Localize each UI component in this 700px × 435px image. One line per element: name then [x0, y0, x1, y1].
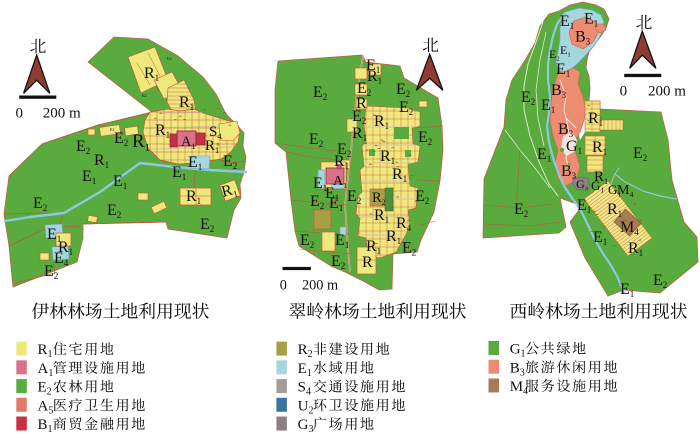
svg-text:200 m: 200 m [302, 278, 338, 294]
svg-text:E2: E2 [167, 56, 171, 61]
svg-text:0: 0 [280, 278, 287, 294]
svg-text:R: R [362, 254, 373, 271]
svg-text:200 m: 200 m [43, 106, 81, 122]
svg-text:0: 0 [16, 106, 24, 122]
svg-text:200 m: 200 m [648, 84, 686, 100]
svg-text:E2: E2 [142, 93, 146, 98]
svg-text:0: 0 [620, 84, 628, 100]
